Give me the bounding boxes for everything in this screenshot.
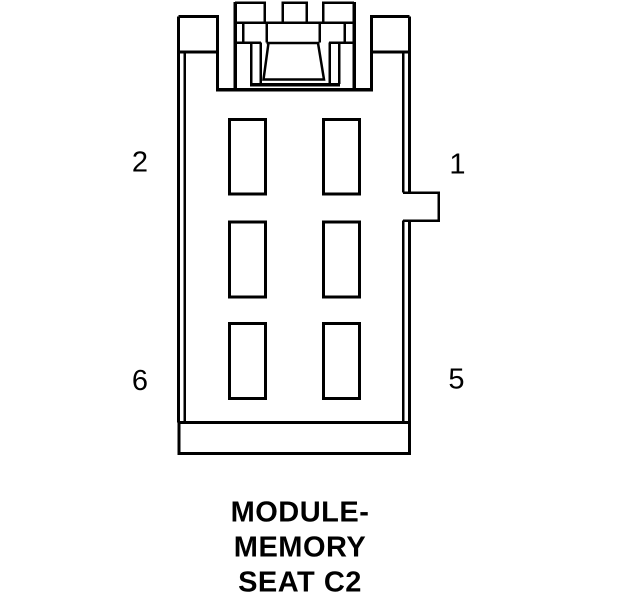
diagram-canvas: 2 1 6 5 MODULE- MEMORY SEAT C2 bbox=[0, 0, 624, 600]
pin-labels: 2 1 6 5 bbox=[132, 147, 466, 398]
pin-cavities bbox=[230, 120, 360, 399]
connector-caption: MODULE- MEMORY SEAT C2 bbox=[231, 497, 370, 599]
caption-line-1: MODULE- bbox=[231, 497, 370, 529]
pin-label-2: 2 bbox=[132, 147, 148, 179]
pin-label-1: 1 bbox=[449, 149, 465, 181]
pin-slot-3 bbox=[324, 222, 360, 297]
connector-base bbox=[179, 423, 410, 454]
pin-label-6: 6 bbox=[132, 365, 148, 397]
pin-slot-1 bbox=[324, 120, 360, 195]
pin-slot-4 bbox=[230, 222, 266, 297]
pin-slot-2 bbox=[230, 120, 266, 195]
housing-band-dividers bbox=[243, 23, 345, 43]
caption-line-3: SEAT C2 bbox=[238, 567, 362, 599]
pin-slot-5 bbox=[324, 324, 360, 399]
latch-housing bbox=[235, 2, 354, 90]
pin-slot-6 bbox=[230, 324, 266, 399]
latch-ramp bbox=[264, 43, 325, 80]
connector-diagram: 2 1 6 5 MODULE- MEMORY SEAT C2 bbox=[0, 0, 624, 600]
pin-label-5: 5 bbox=[448, 364, 464, 396]
connector-outline bbox=[179, 17, 439, 454]
caption-line-2: MEMORY bbox=[234, 532, 366, 564]
housing-top-tabs bbox=[235, 3, 354, 23]
keying-tab bbox=[403, 193, 439, 221]
